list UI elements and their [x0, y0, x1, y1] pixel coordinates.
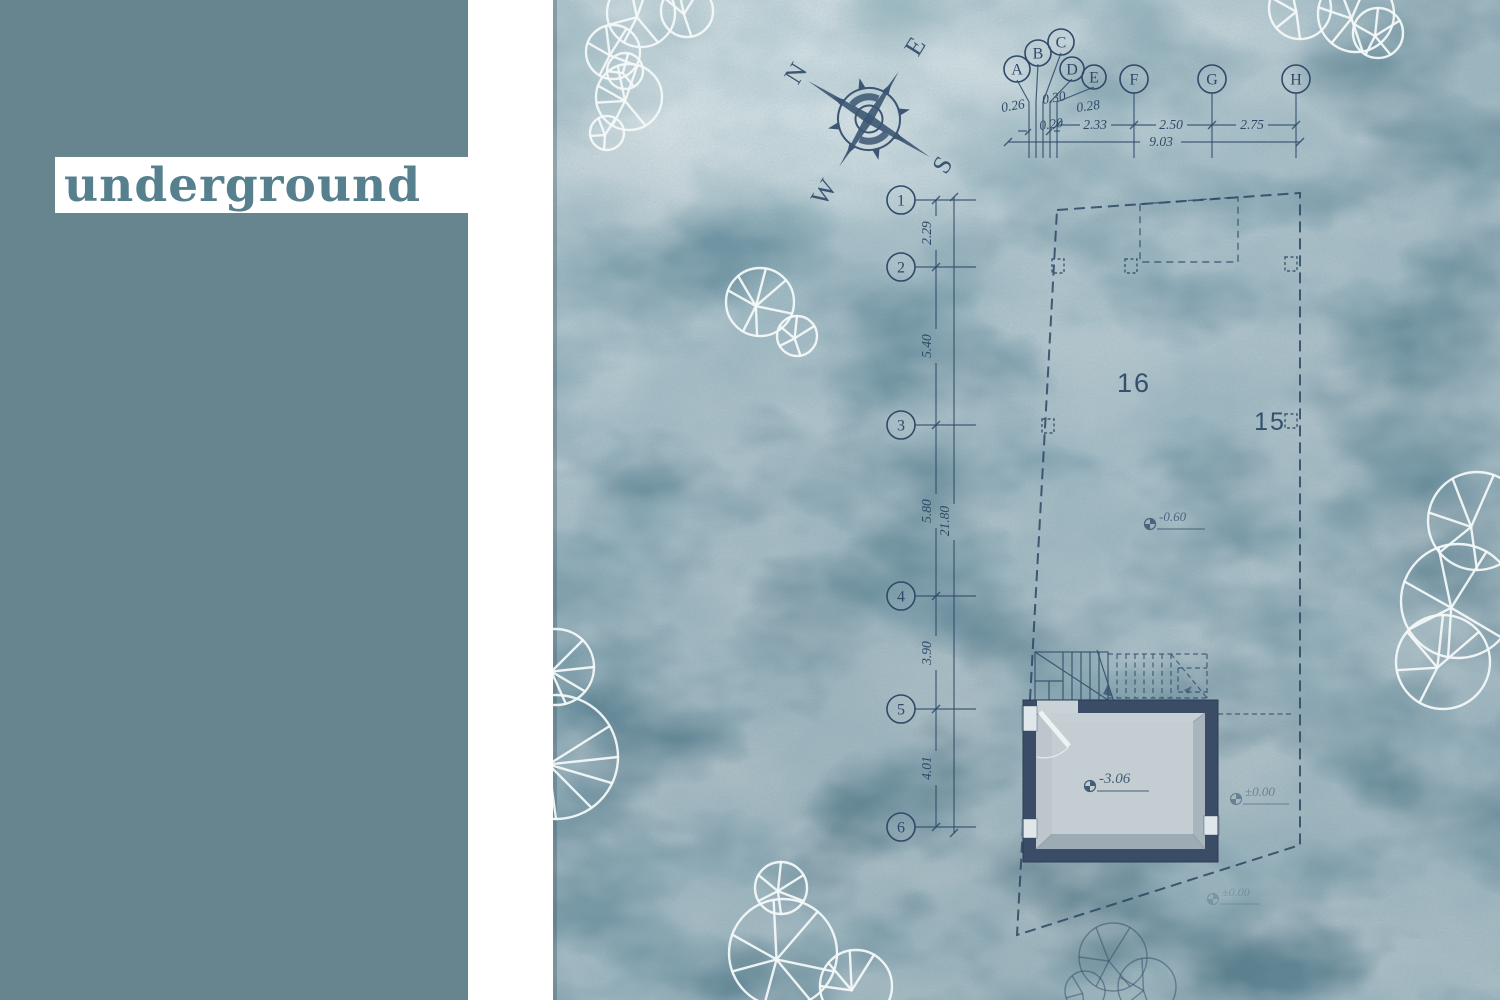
left-panel: [0, 0, 468, 1000]
divider-gap: [468, 0, 553, 1000]
site-plan-background: [553, 0, 1500, 1000]
page-title: underground: [55, 162, 421, 209]
title-band: underground: [55, 157, 553, 213]
presentation-page: underground: [0, 0, 1500, 1000]
